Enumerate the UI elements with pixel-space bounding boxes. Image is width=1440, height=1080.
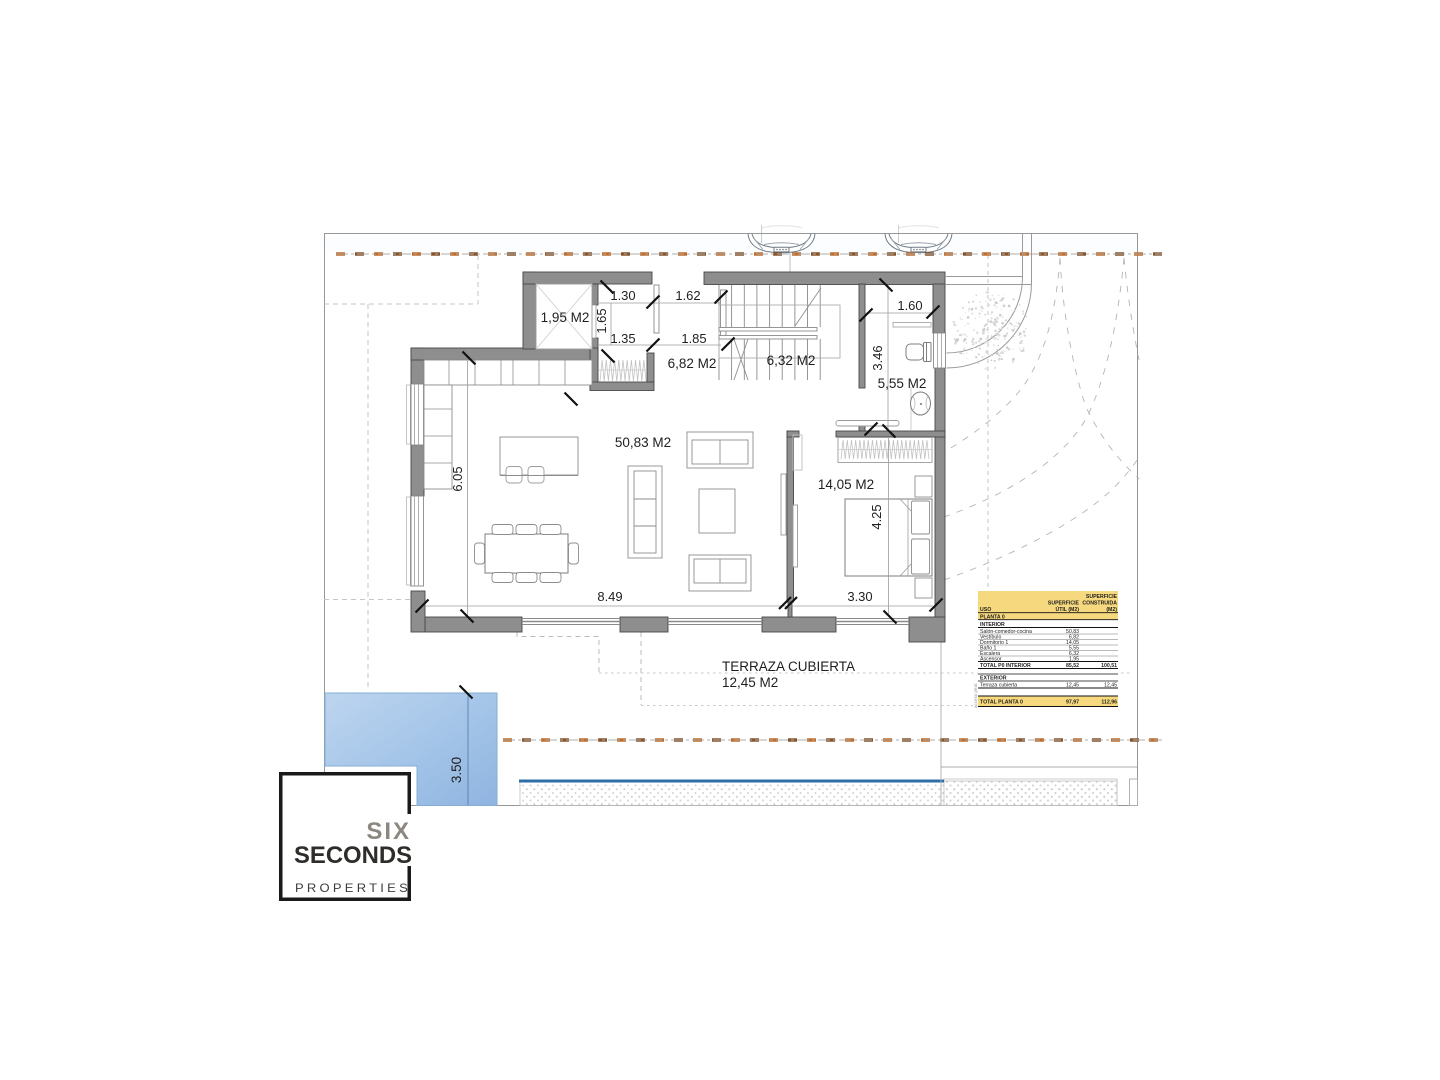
svg-text:USO: USO <box>980 607 991 613</box>
svg-text:3.30: 3.30 <box>847 589 872 604</box>
svg-text:1.62: 1.62 <box>675 288 700 303</box>
svg-text:5,55 M2: 5,55 M2 <box>878 376 927 391</box>
svg-text:TERRAZA CUBIERTA: TERRAZA CUBIERTA <box>722 659 855 674</box>
svg-text:3.50: 3.50 <box>449 757 464 783</box>
svg-text:6,32 M2: 6,32 M2 <box>767 353 816 368</box>
svg-text:14,05 M2: 14,05 M2 <box>818 477 874 492</box>
svg-text:SUPERFICIE: SUPERFICIE <box>1048 601 1080 607</box>
svg-text:ÚTIL (M2): ÚTIL (M2) <box>1055 606 1079 613</box>
svg-text:SUPERFICIE: SUPERFICIE <box>1086 594 1118 600</box>
svg-text:4.25: 4.25 <box>869 504 884 529</box>
svg-text:1.65: 1.65 <box>594 308 609 333</box>
svg-text:1,95 M2: 1,95 M2 <box>541 310 590 325</box>
svg-text:acceso peat.: acceso peat. <box>973 682 978 708</box>
svg-text:6,82 M2: 6,82 M2 <box>668 356 717 371</box>
svg-text:CONSTRUIDA: CONSTRUIDA <box>1082 601 1117 607</box>
svg-text:50,83 M2: 50,83 M2 <box>615 435 671 450</box>
svg-text:(M2): (M2) <box>1106 607 1117 613</box>
svg-text:3.46: 3.46 <box>870 345 885 370</box>
svg-text:TOTAL PLANTA 0: TOTAL PLANTA 0 <box>980 700 1023 706</box>
svg-text:1.30: 1.30 <box>610 288 635 303</box>
svg-text:8.49: 8.49 <box>597 589 622 604</box>
svg-text:PROPERTIES: PROPERTIES <box>295 881 411 895</box>
svg-text:1.85: 1.85 <box>681 331 706 346</box>
svg-text:6.05: 6.05 <box>450 466 465 491</box>
svg-text:12,45 M2: 12,45 M2 <box>722 675 778 690</box>
svg-text:EXTERIOR: EXTERIOR <box>980 676 1007 682</box>
svg-text:SIX: SIX <box>366 818 411 845</box>
svg-text:112,96: 112,96 <box>1101 700 1117 706</box>
svg-text:SECONDS: SECONDS <box>294 842 412 869</box>
svg-text:1.60: 1.60 <box>897 298 922 313</box>
svg-text:97,97: 97,97 <box>1066 700 1079 706</box>
svg-text:1.35: 1.35 <box>610 331 635 346</box>
